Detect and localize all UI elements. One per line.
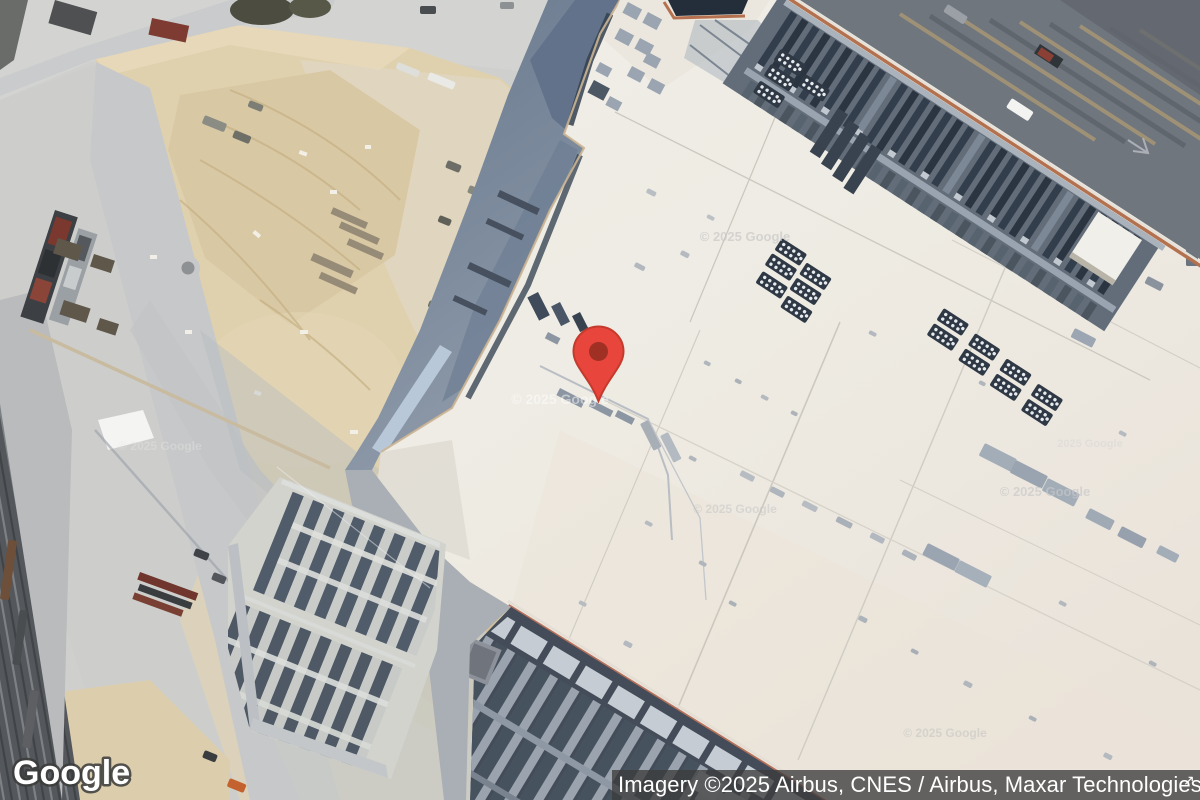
svg-text:© 2025 Google: © 2025 Google: [1000, 484, 1091, 499]
svg-text:2025 Google: 2025 Google: [1057, 438, 1122, 450]
svg-text:Google: Google: [13, 754, 130, 792]
svg-text:© 2025 Google: © 2025 Google: [693, 502, 777, 516]
svg-text:© 2025 Google: © 2025 Google: [903, 726, 987, 740]
svg-text:© 2025 Google: © 2025 Google: [118, 439, 202, 453]
svg-text:© 2025 Google: © 2025 Google: [700, 229, 791, 244]
